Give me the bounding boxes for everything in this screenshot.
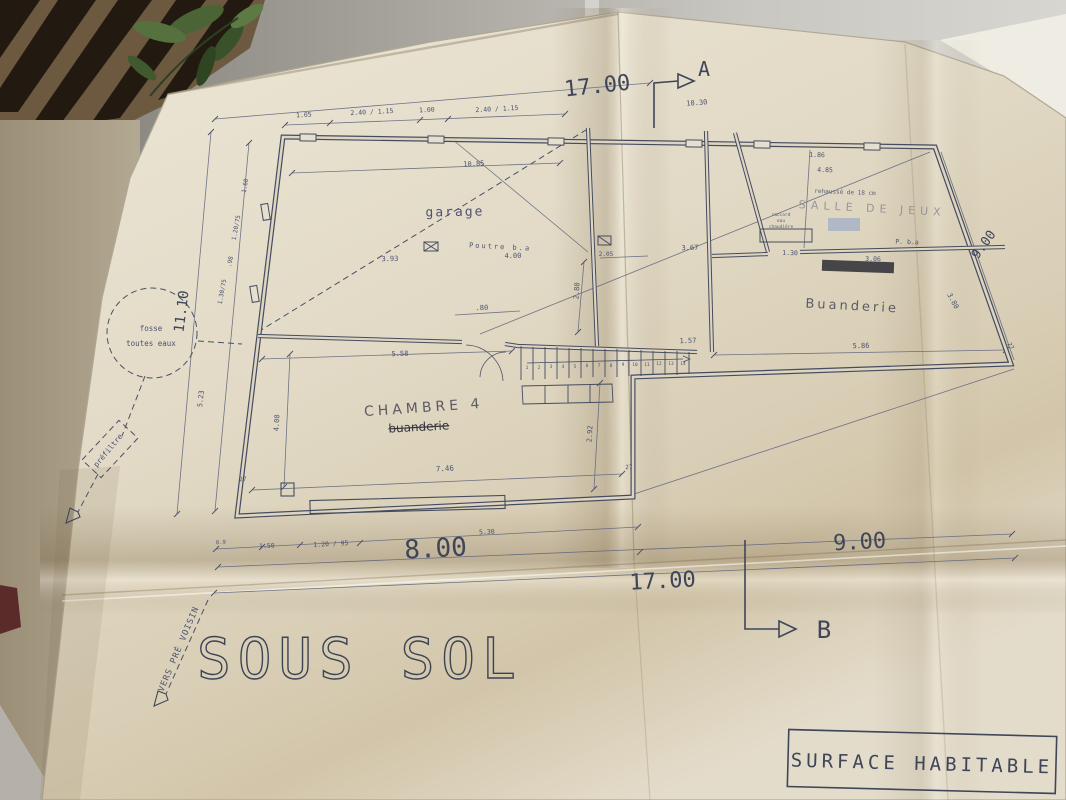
dim-a-offset: 10.30 [686, 98, 708, 107]
step-12: 12 [656, 361, 662, 367]
step-1: 1 [526, 365, 529, 371]
step-3: 3 [550, 364, 553, 370]
step-9: 9 [622, 362, 625, 368]
dim-c-w2: 27 [625, 464, 633, 471]
dim-r2: 4.85 [817, 166, 833, 175]
photo-of-basement-floor-plan: 17.00 8.00 9.00 17.00 11.10 9.00 A B 10.… [0, 0, 1066, 800]
dim-r5: 5.86 [852, 342, 869, 350]
dim-b2: 1.50 [259, 542, 275, 551]
plan-photo-svg: 17.00 8.00 9.00 17.00 11.10 9.00 A B 10.… [0, 0, 1066, 800]
step-5: 5 [574, 364, 577, 370]
blue-ink-smudge [828, 218, 860, 231]
fosse-label-line2: toutes eaux [126, 339, 176, 348]
step-11: 11 [644, 362, 650, 368]
note-p-ba: P. b.a [895, 238, 919, 247]
dim-b1: 0.9 [216, 540, 226, 547]
section-a-label: A [698, 57, 710, 81]
step-2: 2 [538, 365, 541, 371]
plan-title: SOUS SOL [197, 627, 523, 692]
note-chaud3: chaudière [769, 223, 794, 230]
dim-m3: 2.80 [572, 282, 581, 299]
dim-g2: 4.00 [504, 252, 521, 261]
step-4: 4 [562, 364, 565, 370]
dim-b4: 5.30 [479, 528, 495, 537]
room-label-garage: garage [425, 204, 484, 220]
dim-m4: 1.57 [679, 337, 696, 346]
dim-r4: 3.06 [865, 255, 881, 264]
dim-t3: 1.00 [419, 106, 435, 115]
section-b-label: B [817, 616, 831, 644]
note-chaud1: raccord [772, 212, 791, 218]
dim-r1: 1.86 [809, 151, 825, 160]
horizontal-fold [40, 505, 1066, 615]
step-7: 7 [598, 363, 601, 369]
fosse-label-line1: fosse [140, 324, 163, 333]
step-14: 14 [680, 361, 686, 367]
step-8: 8 [610, 363, 613, 369]
dim-bottom-17: 17.00 [629, 567, 696, 595]
dim-width-8: 8.00 [404, 532, 468, 565]
dim-m1: 2.05 [599, 251, 614, 258]
dim-c4: 2.92 [586, 425, 595, 442]
note-chaud2: eau [777, 219, 785, 224]
dim-r3: 1.30 [782, 249, 798, 258]
dim-g1: 3.93 [381, 255, 398, 264]
dim-garage-door: .80 [475, 304, 488, 312]
dim-c-w1: 27 [239, 476, 247, 483]
dim-c1: 7.46 [436, 464, 455, 474]
dim-t1: 1.05 [296, 111, 312, 120]
step-10: 10 [632, 362, 638, 368]
dim-width-9: 9.00 [833, 529, 887, 557]
dim-c2: 5.58 [391, 350, 408, 359]
dim-garage-width: 10.85 [463, 159, 484, 168]
step-13: 13 [668, 361, 674, 367]
dim-m2: 3.67 [681, 244, 698, 253]
step-6: 6 [586, 363, 589, 369]
dim-c3: 4.00 [273, 414, 282, 431]
